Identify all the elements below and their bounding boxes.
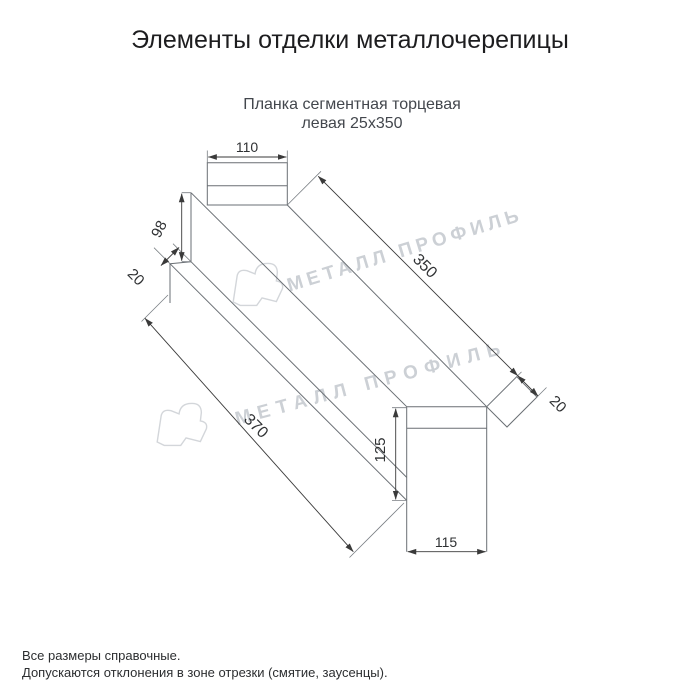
- dim-label-hem-width: 20: [124, 265, 148, 289]
- dim-label-flange-height: 98: [148, 218, 171, 241]
- cloud-logo-icon: [150, 401, 210, 452]
- dim-label-end-tab: 20: [546, 392, 570, 416]
- page-title: Элементы отделки металлочерепицы: [131, 26, 569, 54]
- watermark-text: МЕТАЛЛ ПРОФИЛЬ: [233, 337, 509, 430]
- technical-drawing: Элементы отделки металлочерепицы Планка …: [0, 0, 700, 700]
- dim-label-end-width: 115: [435, 534, 458, 550]
- product-subtitle-line1: Планка сегментная торцевая: [243, 96, 461, 113]
- footer-note-line1: Все размеры справочные.: [22, 648, 180, 663]
- dim-label-end-height: 125: [372, 437, 389, 462]
- drawing-page: Элементы отделки металлочерепицы Планка …: [0, 0, 700, 700]
- product-subtitle-line2: левая 25x350: [301, 115, 402, 132]
- footer-note-line2: Допускаются отклонения в зоне отрезки (с…: [22, 665, 388, 680]
- watermark-text: МЕТАЛЛ ПРОФИЛЬ: [285, 205, 526, 297]
- dim-label-top-width: 110: [236, 139, 259, 155]
- cloud-logo-icon: [226, 261, 286, 312]
